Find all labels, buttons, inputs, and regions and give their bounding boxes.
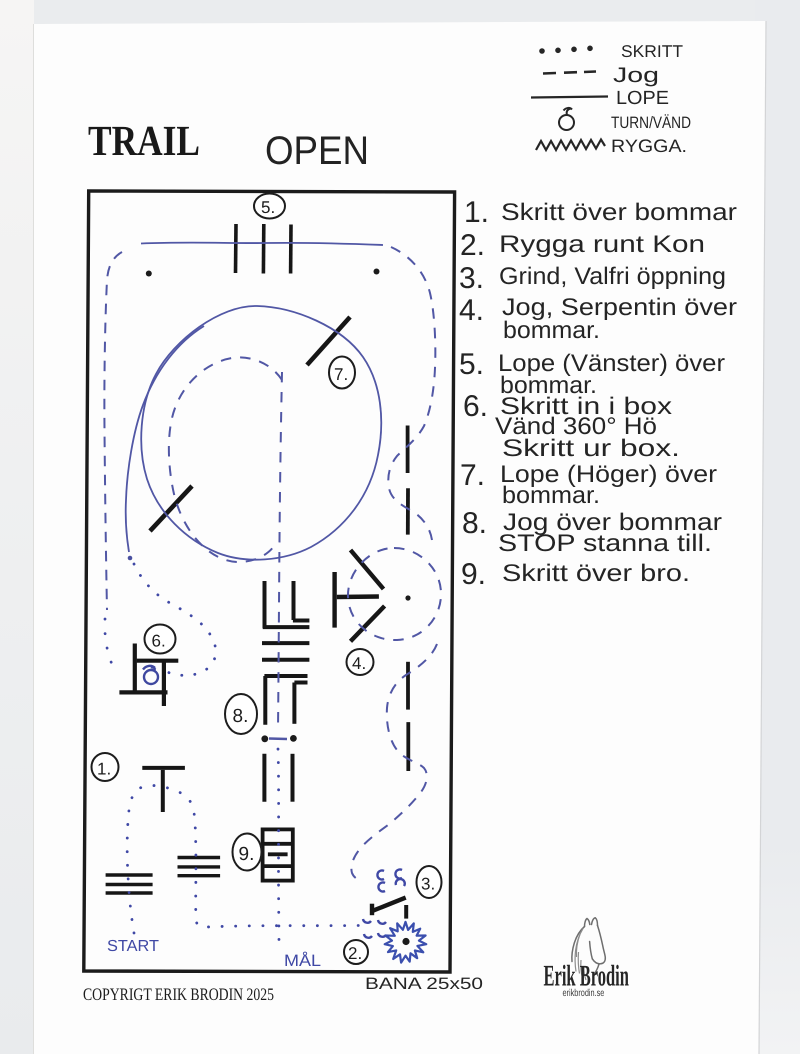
svg-text:2.: 2.	[348, 944, 362, 963]
svg-text:MÅL: MÅL	[284, 951, 321, 970]
svg-text:COPYRIGT ERIK BRODIN 2025: COPYRIGT ERIK BRODIN 2025	[83, 984, 274, 1004]
svg-text:6.: 6.	[463, 390, 488, 423]
svg-text:Rygga runt Kon: Rygga runt Kon	[499, 231, 705, 258]
svg-text:4.: 4.	[352, 654, 366, 673]
svg-text:8.: 8.	[233, 706, 249, 727]
svg-text:7.: 7.	[460, 459, 485, 492]
svg-text:Skritt ur box.: Skritt ur box.	[502, 435, 680, 462]
svg-text:TRAIL: TRAIL	[88, 118, 200, 165]
svg-text:1.: 1.	[97, 760, 111, 779]
svg-text:2.: 2.	[460, 229, 485, 262]
svg-text:Grind, Valfri öppning: Grind, Valfri öppning	[499, 263, 726, 290]
svg-text:bommar.: bommar.	[503, 317, 600, 344]
svg-text:Skritt över bommar: Skritt över bommar	[501, 199, 737, 226]
svg-text:3.: 3.	[421, 875, 435, 894]
svg-text:5.: 5.	[459, 348, 484, 381]
svg-text:Jog: Jog	[613, 64, 659, 87]
svg-text:RYGGA.: RYGGA.	[611, 136, 687, 156]
svg-text:1.: 1.	[464, 196, 489, 229]
svg-text:SKRITT: SKRITT	[621, 42, 683, 61]
svg-text:START: START	[107, 938, 159, 955]
svg-text:BANA 25x50: BANA 25x50	[365, 975, 483, 993]
svg-text:7.: 7.	[334, 365, 348, 384]
svg-text:8.: 8.	[462, 507, 487, 540]
svg-text:5.: 5.	[261, 198, 275, 217]
svg-text:4.: 4.	[459, 294, 484, 327]
svg-text:Skritt över bro.: Skritt över bro.	[502, 560, 690, 587]
svg-text:3.: 3.	[459, 262, 484, 295]
svg-text:TURN/VÄND: TURN/VÄND	[611, 114, 691, 132]
svg-text:OPEN: OPEN	[265, 129, 369, 173]
svg-text:9.: 9.	[239, 844, 255, 865]
svg-text:9.: 9.	[461, 558, 486, 591]
svg-text:bommar.: bommar.	[502, 482, 600, 509]
svg-text:erikbrodin.se: erikbrodin.se	[563, 988, 605, 999]
svg-text:STOP stanna till.: STOP stanna till.	[498, 530, 712, 557]
svg-text:6.: 6.	[152, 632, 166, 651]
svg-text:LOPE: LOPE	[616, 88, 669, 109]
